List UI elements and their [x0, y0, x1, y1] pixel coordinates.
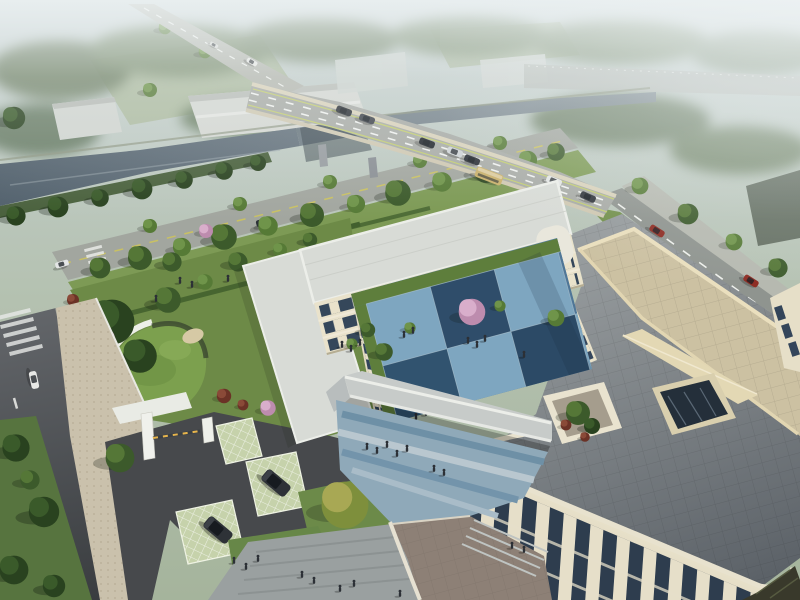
gate-pillar	[202, 417, 214, 443]
haze-right	[440, 0, 800, 280]
aerial-rendering	[0, 0, 800, 600]
rendering-stage	[0, 0, 800, 600]
